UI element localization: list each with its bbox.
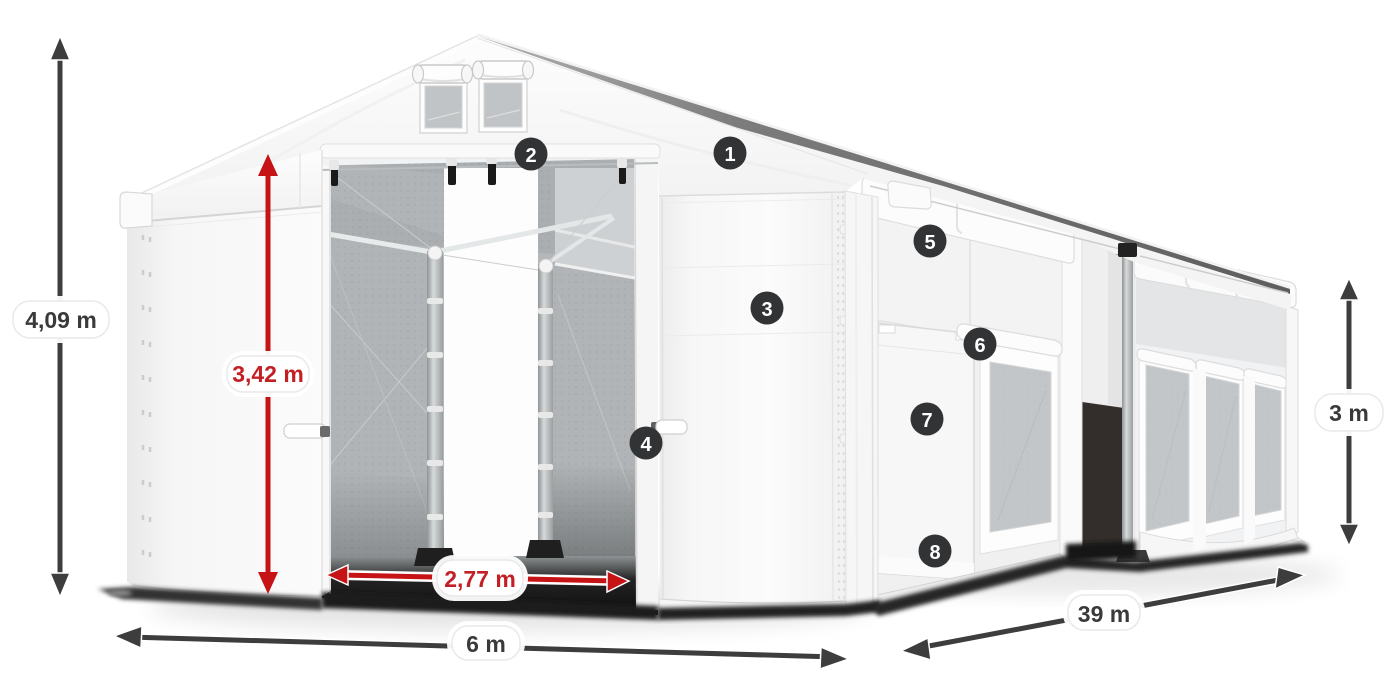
svg-text:39 m: 39 m bbox=[1078, 601, 1130, 627]
svg-text:3,42 m: 3,42 m bbox=[232, 361, 304, 387]
svg-text:4,09 m: 4,09 m bbox=[25, 307, 97, 333]
svg-text:8: 8 bbox=[929, 542, 940, 564]
svg-text:2: 2 bbox=[525, 145, 536, 167]
svg-text:6: 6 bbox=[974, 335, 985, 357]
svg-text:6 m: 6 m bbox=[466, 631, 506, 657]
svg-text:5: 5 bbox=[924, 232, 935, 254]
svg-text:1: 1 bbox=[724, 144, 735, 166]
svg-text:3: 3 bbox=[761, 299, 772, 321]
svg-text:2,77 m: 2,77 m bbox=[444, 566, 516, 592]
svg-text:4: 4 bbox=[640, 434, 652, 456]
svg-text:7: 7 bbox=[921, 410, 932, 432]
svg-text:3 m: 3 m bbox=[1329, 400, 1369, 426]
